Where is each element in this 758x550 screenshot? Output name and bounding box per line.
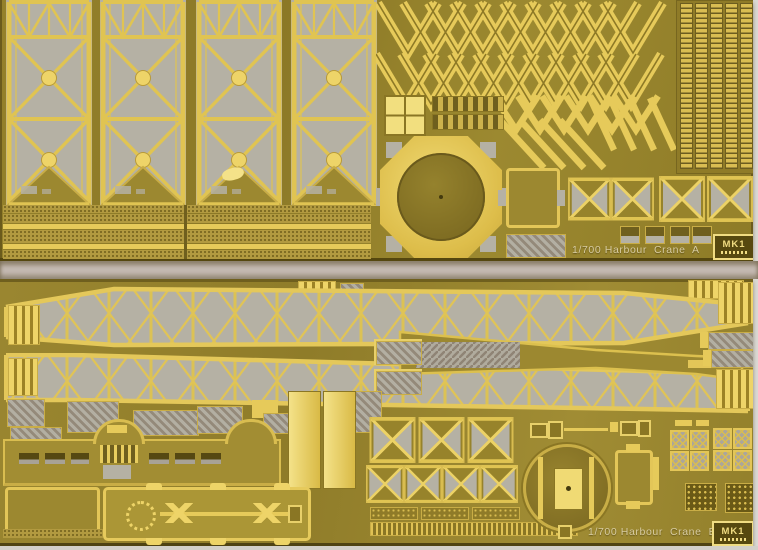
x-brace-girder — [366, 465, 520, 503]
plank-plate — [718, 282, 753, 324]
etch-tab — [558, 525, 572, 539]
mount-knob — [274, 538, 290, 545]
linkage-bracket — [638, 420, 651, 437]
mount-knob — [210, 538, 226, 545]
rod-clevis — [250, 503, 284, 523]
etch-sheet-a: 1/700 Harbour Crane A MK1 — [0, 0, 753, 261]
x-brace-girder — [368, 417, 516, 463]
mesh-deck-plate — [708, 332, 753, 350]
tread-strip-segment — [472, 507, 520, 520]
strip-seam — [184, 205, 187, 259]
jib-boom-spine — [396, 330, 746, 392]
roof-panel — [323, 391, 356, 489]
linkage-bracket — [548, 421, 563, 439]
background-edge — [0, 546, 758, 550]
etch-tab — [696, 420, 709, 426]
ladder-strip — [680, 3, 693, 169]
mesh-grille-plate — [690, 430, 709, 450]
ladder-strip — [725, 3, 738, 169]
etch-tab — [498, 190, 506, 206]
mount-knob — [146, 538, 162, 545]
etch-tab — [626, 501, 640, 509]
small-hatch-plate — [670, 226, 690, 244]
plank-plate — [716, 369, 753, 409]
house-window — [149, 453, 169, 464]
linkage-bracket — [620, 421, 638, 436]
turntable-octagon-assembly — [380, 136, 502, 258]
background-gap — [0, 261, 758, 279]
mesh-grille-plate — [670, 430, 689, 450]
gantry-walkway — [103, 487, 311, 541]
linkage-bracket — [530, 423, 548, 438]
small-hatch-plate — [645, 226, 665, 244]
mesh-grille-plate — [733, 450, 752, 471]
boom-end-cap — [700, 332, 708, 348]
center-hole — [439, 195, 443, 199]
mesh-grille-plate — [690, 451, 709, 471]
walkway-tread-strip — [3, 250, 371, 259]
rail-strip — [3, 224, 371, 229]
mk1-logo: MK1 — [712, 521, 753, 546]
mesh-deck-plate — [133, 410, 199, 436]
house-door — [103, 465, 131, 479]
mk1-logo-subtext — [720, 538, 746, 541]
house-window — [71, 453, 89, 464]
rivet-plate — [725, 483, 753, 513]
ladder-strip — [740, 3, 753, 169]
hatch-grid-plate — [384, 95, 426, 136]
rod-clevis — [162, 503, 196, 523]
walkway-tread-strip — [3, 214, 371, 223]
small-hatch-plate — [620, 226, 640, 244]
x-brace-girder — [658, 176, 753, 222]
mesh-deck-plate — [506, 234, 566, 258]
turntable-circle — [397, 153, 485, 241]
crane-house-side — [3, 439, 281, 486]
ladder-strip — [710, 3, 723, 169]
etch-sheet-b: 1/700 Harbour Crane B MK1 — [0, 279, 753, 546]
etch-tab — [675, 420, 692, 426]
mount-knob — [274, 483, 290, 490]
mesh-grille-plate — [713, 450, 732, 471]
mk1-logo-subtext — [721, 251, 747, 254]
walkway-tread-strip — [3, 529, 103, 538]
linkage-pin — [610, 422, 618, 432]
linkage-rod — [564, 428, 608, 431]
photoetch-sheets-photo: 1/700 Harbour Crane A MK1 — [0, 0, 758, 550]
mount-knob — [210, 483, 226, 490]
rivet-plate — [685, 483, 717, 511]
winch-gear — [126, 501, 156, 531]
mk1-logo: MK1 — [713, 234, 753, 260]
tower-truss-panel — [6, 0, 92, 206]
plank-plate — [8, 358, 38, 396]
center-hole — [566, 486, 571, 491]
ladder-strip-panel — [676, 0, 753, 174]
tread-strip-segment — [370, 507, 418, 520]
mount-knob — [146, 483, 162, 490]
house-window — [201, 453, 221, 464]
walkway-tread-strip — [3, 230, 371, 243]
etch-tab — [653, 457, 659, 490]
rod-end-plate — [288, 505, 302, 523]
rail-strip — [3, 244, 371, 249]
mk1-logo-text: MK1 — [722, 240, 745, 250]
slide-rail — [538, 457, 543, 519]
mesh-grille-plate — [713, 428, 732, 449]
boom-end-cap — [703, 350, 711, 366]
slide-rail — [589, 457, 594, 519]
framed-mesh-plate — [374, 339, 422, 365]
small-hatch-plate — [692, 226, 712, 244]
small-cleat-strip — [432, 96, 504, 112]
roof-panel — [288, 391, 321, 489]
ladder-strip — [695, 3, 708, 169]
roof-panel-pair — [288, 391, 355, 487]
sheet-a-label: 1/700 Harbour Crane A — [572, 244, 700, 256]
mount-plate — [615, 450, 653, 505]
house-window — [175, 453, 195, 464]
mk1-logo-text: MK1 — [721, 527, 744, 537]
etch-tab — [557, 190, 565, 206]
small-cleat-strip — [432, 114, 504, 130]
arch-vent — [107, 425, 127, 433]
mesh-grille-plate — [733, 428, 752, 449]
carriage-plate — [554, 468, 583, 510]
turntable-base — [523, 444, 611, 532]
mesh-deck-plate — [7, 399, 45, 427]
mesh-deck-plate — [711, 350, 753, 368]
etch-tab — [626, 444, 640, 452]
equipment-box-plate — [506, 168, 560, 228]
walkway-tread-strip — [3, 205, 371, 213]
tower-truss-panel — [291, 0, 377, 206]
tread-strip-segment — [421, 507, 469, 520]
plank-plate — [8, 305, 40, 345]
octagon-base-plate — [380, 136, 502, 258]
x-brace-girder — [568, 176, 654, 222]
mesh-grille-plate — [670, 451, 689, 471]
house-window — [45, 453, 65, 464]
door-grille — [100, 445, 138, 463]
sheet-b-label: 1/700 Harbour Crane B — [588, 526, 716, 538]
tower-truss-panel — [100, 0, 186, 206]
house-window — [19, 453, 39, 464]
